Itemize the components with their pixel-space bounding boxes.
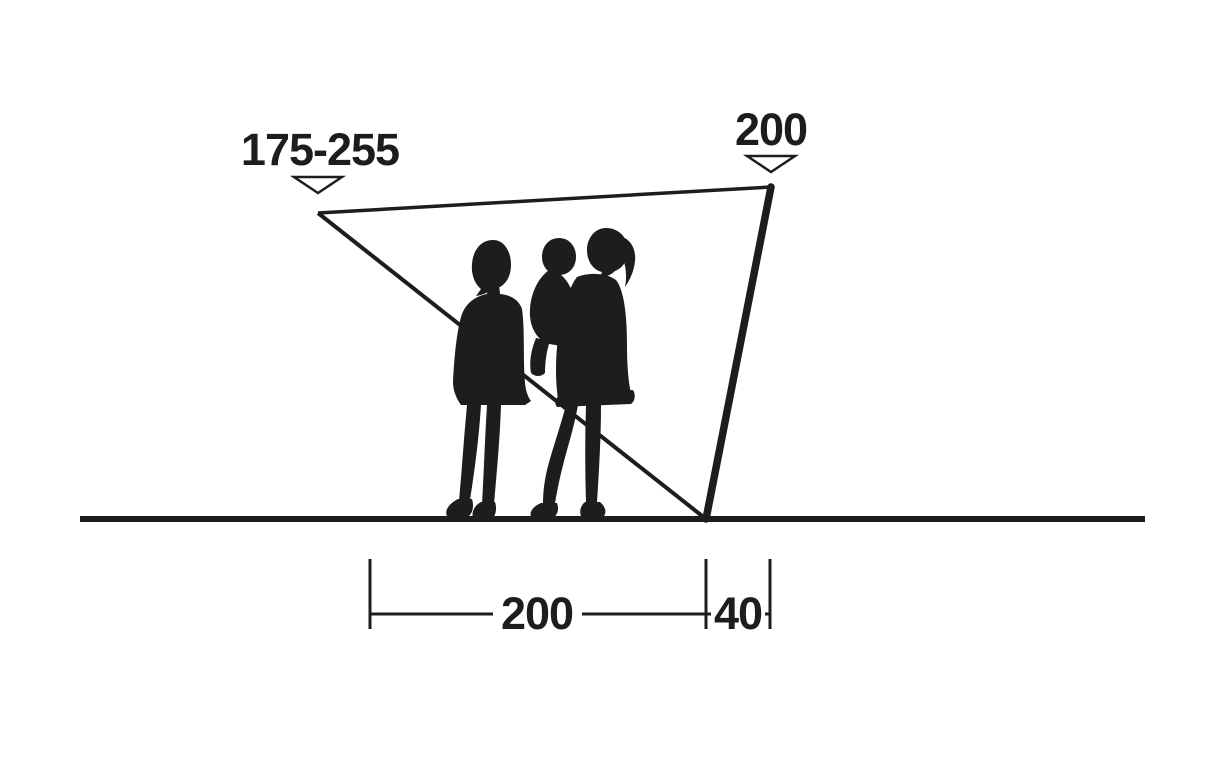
pole-offset-label: 40 xyxy=(714,588,762,639)
adult-shoe xyxy=(472,502,496,518)
adult-silhouette xyxy=(446,240,531,518)
carrying-adult-leg xyxy=(543,405,578,504)
adult-torso xyxy=(453,285,531,405)
tent-dimension-diagram: 175-255 200 200 40 xyxy=(0,0,1230,781)
down-arrow-icon xyxy=(747,156,795,172)
depth-label: 200 xyxy=(501,588,573,639)
child-leg xyxy=(530,338,550,376)
down-arrow-icon xyxy=(294,177,342,193)
ground-dimension: 200 40 xyxy=(370,559,770,639)
carrying-adult-shoe xyxy=(531,503,558,517)
adult-leg xyxy=(459,405,481,501)
carrying-adult-leg xyxy=(585,405,601,503)
adult-leg xyxy=(482,405,501,504)
child-head xyxy=(542,238,576,275)
front-height-label: 175-255 xyxy=(241,124,399,175)
pole-height-dimension: 200 xyxy=(735,104,807,172)
carrying-adult-shoe xyxy=(580,502,605,516)
canopy-top-edge xyxy=(318,187,771,213)
front-height-dimension: 175-255 xyxy=(241,124,399,193)
diagram-svg: 175-255 200 200 40 xyxy=(0,0,1230,781)
tent-pole xyxy=(706,187,771,519)
pole-height-label: 200 xyxy=(735,104,807,155)
adult-with-child-silhouette xyxy=(530,228,635,517)
adult-shoe xyxy=(446,499,473,516)
